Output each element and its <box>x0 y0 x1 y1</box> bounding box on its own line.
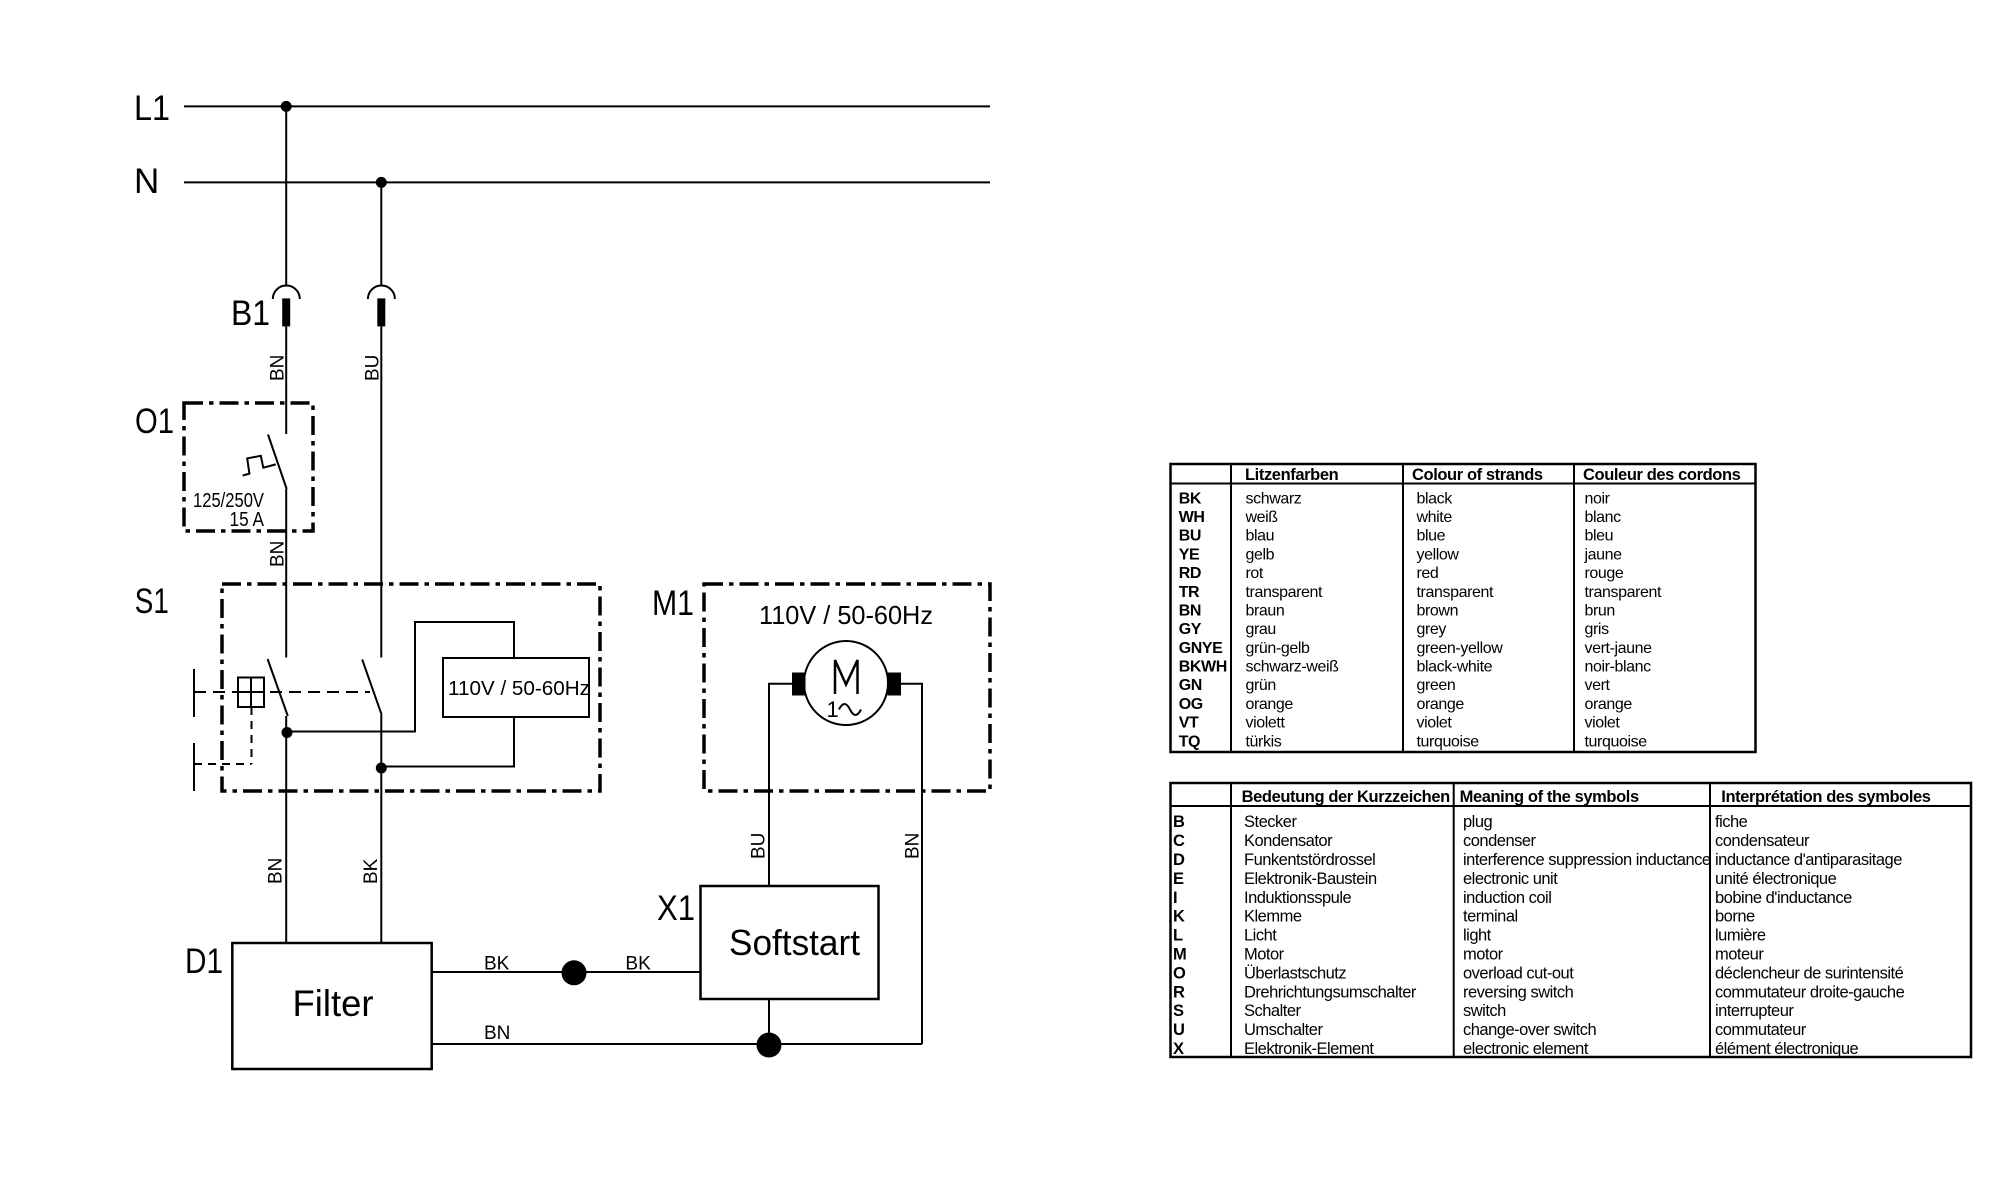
svg-text:blau: blau <box>1246 528 1275 545</box>
svg-text:BN: BN <box>1179 602 1201 619</box>
svg-text:Drehrichtungsumschalter: Drehrichtungsumschalter <box>1244 983 1417 1001</box>
svg-text:red: red <box>1417 565 1439 582</box>
svg-text:D1: D1 <box>185 942 223 981</box>
svg-text:grey: grey <box>1417 621 1447 638</box>
svg-text:interrupteur: interrupteur <box>1715 1002 1794 1020</box>
svg-text:yellow: yellow <box>1417 546 1460 563</box>
svg-text:bleu: bleu <box>1585 528 1614 545</box>
svg-text:C: C <box>1173 832 1185 850</box>
svg-text:noir: noir <box>1585 490 1611 507</box>
svg-text:Funkentstördrossel: Funkentstördrossel <box>1244 851 1375 869</box>
svg-text:black: black <box>1417 490 1454 507</box>
svg-text:Litzenfarben: Litzenfarben <box>1245 466 1339 484</box>
svg-text:WH: WH <box>1179 509 1205 526</box>
svg-text:white: white <box>1416 509 1453 526</box>
svg-text:Schalter: Schalter <box>1244 1002 1302 1020</box>
svg-text:BN: BN <box>903 833 924 859</box>
svg-text:transparent: transparent <box>1585 584 1662 601</box>
svg-text:D: D <box>1173 851 1185 869</box>
svg-text:Elektronik-Element: Elektronik-Element <box>1244 1040 1374 1058</box>
svg-text:unité électronique: unité électronique <box>1715 870 1837 888</box>
svg-text:interference suppression induc: interference suppression inductance <box>1463 851 1711 869</box>
svg-text:jaune: jaune <box>1584 546 1623 563</box>
svg-text:turquoise: turquoise <box>1417 733 1480 750</box>
svg-text:orange: orange <box>1585 696 1633 713</box>
svg-text:grün: grün <box>1246 677 1276 694</box>
svg-text:Kondensator: Kondensator <box>1244 832 1333 850</box>
svg-text:turquoise: turquoise <box>1585 733 1648 750</box>
svg-text:condensateur: condensateur <box>1715 832 1810 850</box>
svg-text:rouge: rouge <box>1585 565 1624 582</box>
svg-text:BKWH: BKWH <box>1179 659 1227 676</box>
svg-text:green: green <box>1417 677 1456 694</box>
svg-text:O: O <box>1173 964 1186 982</box>
svg-text:braun: braun <box>1246 602 1285 619</box>
svg-text:schwarz-weiß: schwarz-weiß <box>1246 659 1340 676</box>
svg-text:BK: BK <box>484 954 510 975</box>
svg-text:L: L <box>1173 927 1183 945</box>
svg-text:fiche: fiche <box>1715 813 1748 831</box>
svg-text:black-white: black-white <box>1417 659 1493 676</box>
svg-text:X: X <box>1173 1040 1184 1058</box>
svg-text:R: R <box>1173 983 1185 1001</box>
svg-text:Interprétation des symboles: Interprétation des symboles <box>1721 788 1930 806</box>
svg-text:reversing switch: reversing switch <box>1463 983 1574 1001</box>
svg-text:BK: BK <box>1179 490 1202 507</box>
svg-text:blue: blue <box>1417 528 1446 545</box>
svg-text:U: U <box>1173 1021 1184 1039</box>
svg-text:noir-blanc: noir-blanc <box>1585 659 1652 676</box>
svg-text:Licht: Licht <box>1244 927 1277 945</box>
svg-text:grün-gelb: grün-gelb <box>1246 640 1311 657</box>
svg-text:déclencheur de surintensité: déclencheur de surintensité <box>1715 964 1904 982</box>
svg-text:110V / 50-60Hz: 110V / 50-60Hz <box>448 678 590 700</box>
svg-text:B1: B1 <box>231 294 270 333</box>
svg-text:bobine d'inductance: bobine d'inductance <box>1715 889 1852 907</box>
svg-text:motor: motor <box>1463 946 1504 964</box>
svg-text:rot: rot <box>1246 565 1264 582</box>
svg-text:violet: violet <box>1417 715 1453 732</box>
svg-text:Überlastschutz: Überlastschutz <box>1244 964 1346 982</box>
svg-text:Umschalter: Umschalter <box>1244 1021 1323 1039</box>
svg-text:commutateur: commutateur <box>1715 1021 1807 1039</box>
svg-text:Softstart: Softstart <box>729 922 860 963</box>
svg-text:Elektronik-Baustein: Elektronik-Baustein <box>1244 870 1377 888</box>
svg-text:schwarz: schwarz <box>1246 490 1302 507</box>
svg-text:M1: M1 <box>652 584 694 623</box>
svg-text:BU: BU <box>1179 528 1201 545</box>
svg-text:RD: RD <box>1179 565 1201 582</box>
svg-text:Motor: Motor <box>1244 946 1285 964</box>
svg-text:violett: violett <box>1246 715 1286 732</box>
svg-text:GY: GY <box>1179 621 1202 638</box>
svg-text:GNYE: GNYE <box>1179 640 1223 657</box>
svg-text:Meaning of the symbols: Meaning of the symbols <box>1460 788 1639 806</box>
svg-text:brun: brun <box>1585 602 1615 619</box>
svg-text:overload cut-out: overload cut-out <box>1463 964 1574 982</box>
svg-text:B: B <box>1173 813 1185 831</box>
svg-text:inductance d'antiparasitage: inductance d'antiparasitage <box>1715 851 1902 869</box>
svg-text:Bedeutung der Kurzzeichen: Bedeutung der Kurzzeichen <box>1242 788 1451 806</box>
svg-text:brown: brown <box>1417 602 1459 619</box>
svg-text:light: light <box>1463 927 1492 945</box>
svg-text:Klemme: Klemme <box>1244 908 1302 926</box>
svg-text:lumière: lumière <box>1715 927 1766 945</box>
svg-text:gris: gris <box>1585 621 1610 638</box>
svg-text:electronic unit: electronic unit <box>1463 870 1558 888</box>
svg-text:élément électronique: élément électronique <box>1715 1040 1859 1058</box>
svg-text:weiß: weiß <box>1245 509 1279 526</box>
svg-text:110V / 50-60Hz: 110V / 50-60Hz <box>759 600 933 630</box>
svg-text:electronic element: electronic element <box>1463 1040 1589 1058</box>
svg-text:vert-jaune: vert-jaune <box>1585 640 1653 657</box>
svg-text:Induktionsspule: Induktionsspule <box>1244 889 1351 907</box>
svg-text:plug: plug <box>1463 813 1493 831</box>
svg-text:orange: orange <box>1246 696 1294 713</box>
svg-text:M: M <box>1173 946 1186 964</box>
svg-text:O1: O1 <box>135 402 174 441</box>
svg-text:switch: switch <box>1463 1002 1506 1020</box>
svg-text:BN: BN <box>484 1023 510 1044</box>
svg-text:commutateur droite-gauche: commutateur droite-gauche <box>1715 983 1905 1001</box>
svg-text:moteur: moteur <box>1715 946 1764 964</box>
svg-text:OG: OG <box>1179 696 1203 713</box>
svg-text:BK: BK <box>361 858 382 884</box>
svg-text:S1: S1 <box>135 582 169 621</box>
svg-text:vert: vert <box>1585 677 1611 694</box>
svg-text:borne: borne <box>1715 908 1755 926</box>
svg-text:BN: BN <box>266 858 287 884</box>
svg-text:condenser: condenser <box>1463 832 1537 850</box>
svg-text:15 A: 15 A <box>230 509 265 531</box>
svg-text:violet: violet <box>1585 715 1621 732</box>
svg-text:türkis: türkis <box>1246 733 1282 750</box>
svg-text:S: S <box>1173 1002 1184 1020</box>
svg-text:VT: VT <box>1179 715 1199 732</box>
svg-text:grau: grau <box>1246 621 1276 638</box>
svg-text:orange: orange <box>1417 696 1465 713</box>
svg-text:TQ: TQ <box>1179 733 1200 750</box>
svg-text:I: I <box>1173 889 1177 907</box>
svg-text:BU: BU <box>749 833 770 859</box>
svg-text:K: K <box>1173 908 1185 926</box>
svg-text:YE: YE <box>1179 546 1200 563</box>
svg-text:Stecker: Stecker <box>1244 813 1297 831</box>
svg-text:Couleur des cordons: Couleur des cordons <box>1583 466 1741 484</box>
svg-text:1: 1 <box>827 697 839 722</box>
svg-text:gelb: gelb <box>1246 546 1275 563</box>
svg-text:BK: BK <box>625 954 651 975</box>
svg-text:X1: X1 <box>657 889 695 928</box>
svg-text:green-yellow: green-yellow <box>1417 640 1504 657</box>
svg-text:change-over switch: change-over switch <box>1463 1021 1596 1039</box>
svg-text:transparent: transparent <box>1417 584 1494 601</box>
svg-text:transparent: transparent <box>1246 584 1323 601</box>
svg-text:TR: TR <box>1179 584 1200 601</box>
svg-text:N: N <box>134 162 159 201</box>
svg-text:Filter: Filter <box>293 983 374 1024</box>
svg-text:induction coil: induction coil <box>1463 889 1551 907</box>
svg-text:terminal: terminal <box>1463 908 1518 926</box>
svg-text:GN: GN <box>1179 677 1202 694</box>
svg-text:L1: L1 <box>134 89 170 128</box>
svg-text:E: E <box>1173 870 1184 888</box>
svg-text:blanc: blanc <box>1585 509 1622 526</box>
svg-text:Colour of strands: Colour of strands <box>1412 466 1543 484</box>
